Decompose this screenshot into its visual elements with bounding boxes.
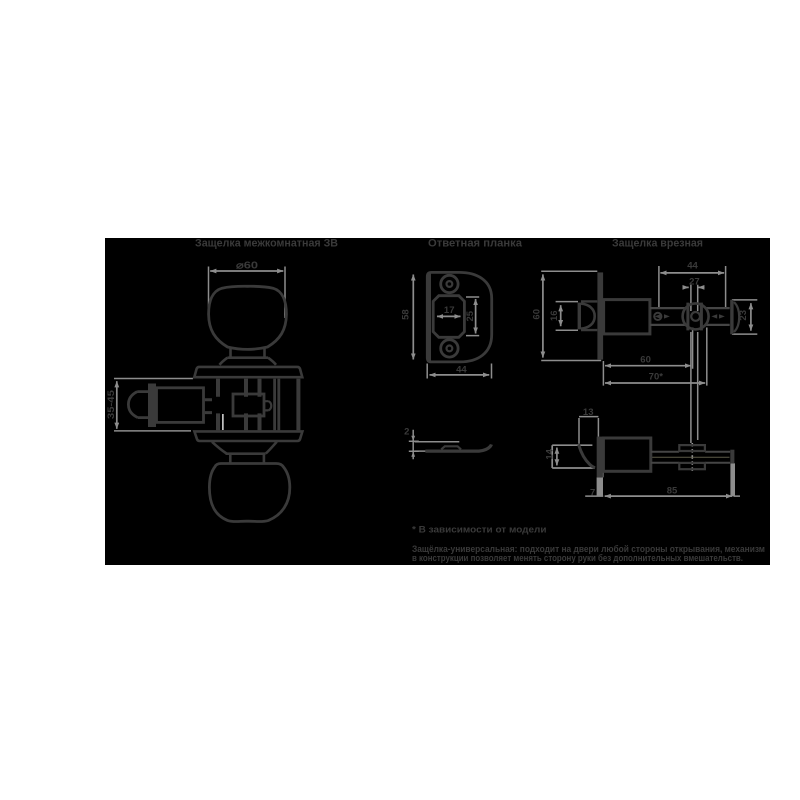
svg-text:7: 7 bbox=[590, 488, 595, 499]
svg-text:60: 60 bbox=[532, 309, 543, 320]
svg-text:в конструкции позволяет менять: в конструкции позволяет менять сторону р… bbox=[412, 553, 743, 563]
svg-text:44: 44 bbox=[687, 261, 698, 272]
svg-text:* В зависимости от модели: * В зависимости от модели bbox=[412, 524, 547, 534]
svg-text:17: 17 bbox=[444, 305, 455, 316]
svg-text:44: 44 bbox=[456, 364, 467, 375]
svg-text:60: 60 bbox=[640, 354, 651, 365]
svg-text:27: 27 bbox=[689, 276, 700, 287]
svg-text:25: 25 bbox=[465, 310, 476, 321]
svg-text:23: 23 bbox=[738, 310, 749, 321]
svg-text:70*: 70* bbox=[649, 372, 664, 383]
svg-text:Защелка межкомнатная ЗВ: Защелка межкомнатная ЗВ bbox=[195, 238, 338, 250]
svg-text:16: 16 bbox=[549, 310, 560, 321]
svg-text:35-45: 35-45 bbox=[106, 389, 117, 419]
svg-text:Ответная планка: Ответная планка bbox=[428, 238, 523, 250]
svg-text:⌀60: ⌀60 bbox=[236, 260, 259, 271]
svg-text:14: 14 bbox=[545, 448, 556, 459]
svg-text:Защелка врезная: Защелка врезная bbox=[612, 238, 703, 250]
svg-text:2: 2 bbox=[404, 427, 409, 438]
svg-text:85: 85 bbox=[667, 485, 678, 496]
svg-text:58: 58 bbox=[401, 309, 412, 320]
svg-text:13: 13 bbox=[583, 407, 594, 418]
